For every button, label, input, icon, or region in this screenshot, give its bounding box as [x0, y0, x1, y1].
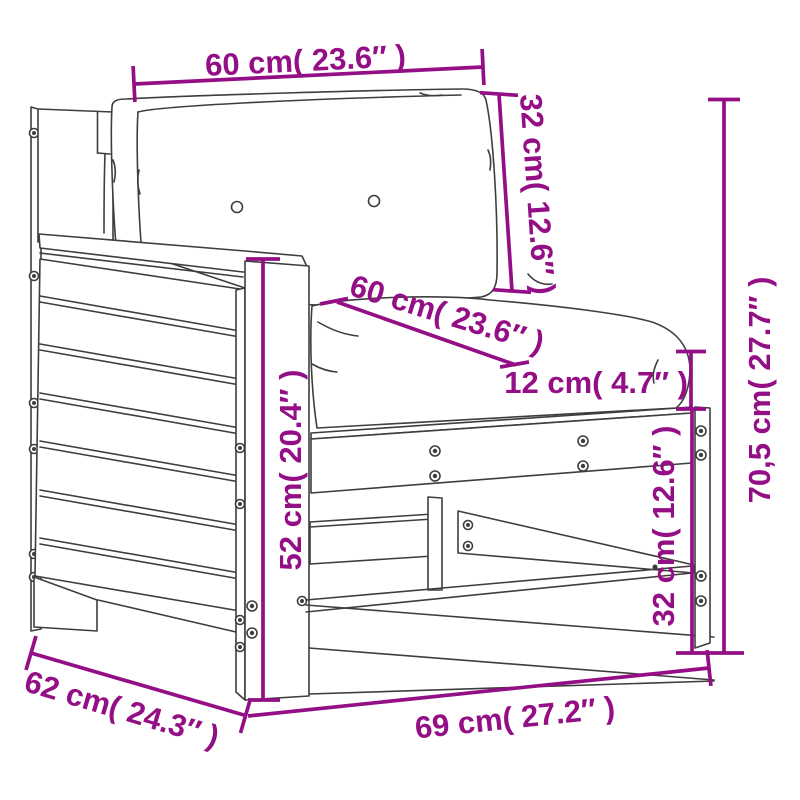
svg-text:32 cm( 12.6″ ): 32 cm( 12.6″ ): [646, 426, 681, 627]
svg-text:12 cm( 4.7″ ): 12 cm( 4.7″ ): [504, 365, 688, 400]
svg-text:70,5 cm( 27.7″ ): 70,5 cm( 27.7″ ): [742, 277, 777, 504]
svg-text:52 cm( 20.4″ ): 52 cm( 20.4″ ): [273, 370, 308, 571]
